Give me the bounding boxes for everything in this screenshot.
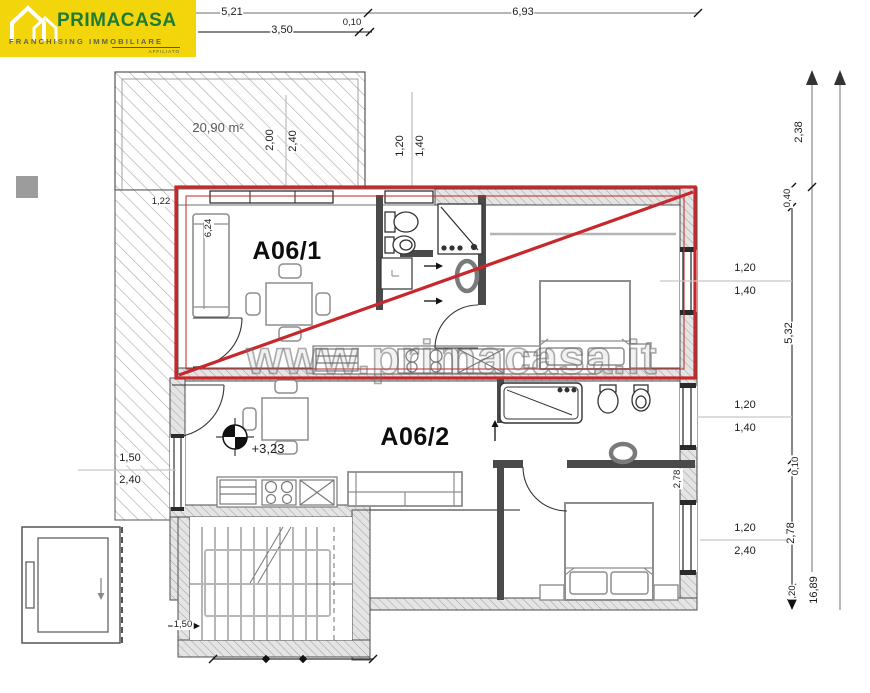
bed-2-icon — [565, 503, 653, 600]
elevator — [22, 527, 122, 643]
dim-bath-1-40: 1,40 — [415, 134, 427, 157]
primacasa-logo: PRIMACASA FRANCHISING IMMOBILIARE AFFILI… — [0, 0, 196, 57]
window-right-3 — [680, 500, 697, 575]
dim-sofa-6-24: 6,24 — [204, 218, 214, 239]
dim-right-2-78: 2,78 — [786, 521, 798, 544]
watermark-text: www.primacasa.it — [246, 330, 657, 385]
dim-stairs-1-50: 1,50 — [173, 620, 194, 630]
logo-brand-text: PRIMACASA — [57, 10, 177, 32]
dim-terrace-2-40: 2,40 — [288, 129, 300, 152]
dim-win2-1-40: 1,40 — [733, 423, 756, 435]
dim-win2-1-20: 1,20 — [733, 400, 756, 412]
window-right-2 — [680, 383, 697, 450]
washing-machine-icon — [381, 258, 412, 289]
washbasin-2-icon — [611, 444, 635, 462]
logo-subtitle-text: FRANCHISING IMMOBILIARE — [9, 37, 163, 46]
dim-terrace-1-22: 1,22 — [151, 197, 172, 207]
door-bedroom2-icon — [523, 467, 567, 511]
legend-square — [16, 176, 38, 198]
dim-right-2-38: 2,38 — [794, 120, 806, 143]
bathtub-icon — [500, 383, 582, 423]
dim-top-5-21: 5,21 — [220, 7, 243, 19]
dim-top-6-93: 6,93 — [511, 7, 534, 19]
room-label-a06-1: A06/1 — [252, 238, 321, 264]
dim-top-0-10: 0,10 — [342, 18, 363, 28]
dim-right-0-20: ,20 — [788, 584, 798, 599]
shower-icon — [438, 204, 482, 254]
dim-terrace-2-00: 2,00 — [265, 128, 277, 151]
dim-win3-2-40: 2,40 — [733, 546, 756, 558]
nightstand-icon — [654, 585, 678, 600]
bidet-icon — [385, 236, 415, 254]
bidet-2-icon — [632, 385, 650, 411]
dim-bath-1-20: 1,20 — [395, 134, 407, 157]
sofa-2-icon — [348, 472, 462, 506]
nightstand-icon — [540, 585, 564, 600]
dim-bed-2-78: 2,78 — [673, 469, 683, 490]
dim-leftwin-1-50: 1,50 — [118, 453, 141, 465]
dim-right-5-32: 5,32 — [784, 321, 796, 344]
dim-right-16-89: 16,89 — [809, 575, 821, 605]
window-left — [170, 434, 185, 511]
floorplan-page: www.primacasa.it 5,210,106,933,5020,90 m… — [0, 0, 870, 693]
staircase — [190, 517, 352, 640]
up-arrow-icon — [492, 420, 499, 441]
terrace-area-label: 20,90 m² — [192, 121, 243, 135]
dim-win1-1-20: 1,20 — [733, 263, 756, 275]
kitchen-counter-2-icon — [217, 477, 337, 507]
dim-right-0-10: 0,10 — [791, 456, 801, 477]
dim-right-0-40: 0,40 — [783, 188, 793, 209]
dim-win3-1-20: 1,20 — [733, 523, 756, 535]
room-label-a06-2: A06/2 — [380, 424, 449, 450]
level-marker-label: +3,23 — [252, 442, 285, 456]
logo-affiliate-text: AFFILIATO — [112, 47, 180, 54]
toilet-icon — [385, 212, 418, 232]
dim-win1-1-40: 1,40 — [733, 286, 756, 298]
toilet-2-icon — [598, 385, 618, 413]
dim-leftwin-2-40: 2,40 — [118, 475, 141, 487]
dim-top-3-50: 3,50 — [270, 25, 293, 37]
